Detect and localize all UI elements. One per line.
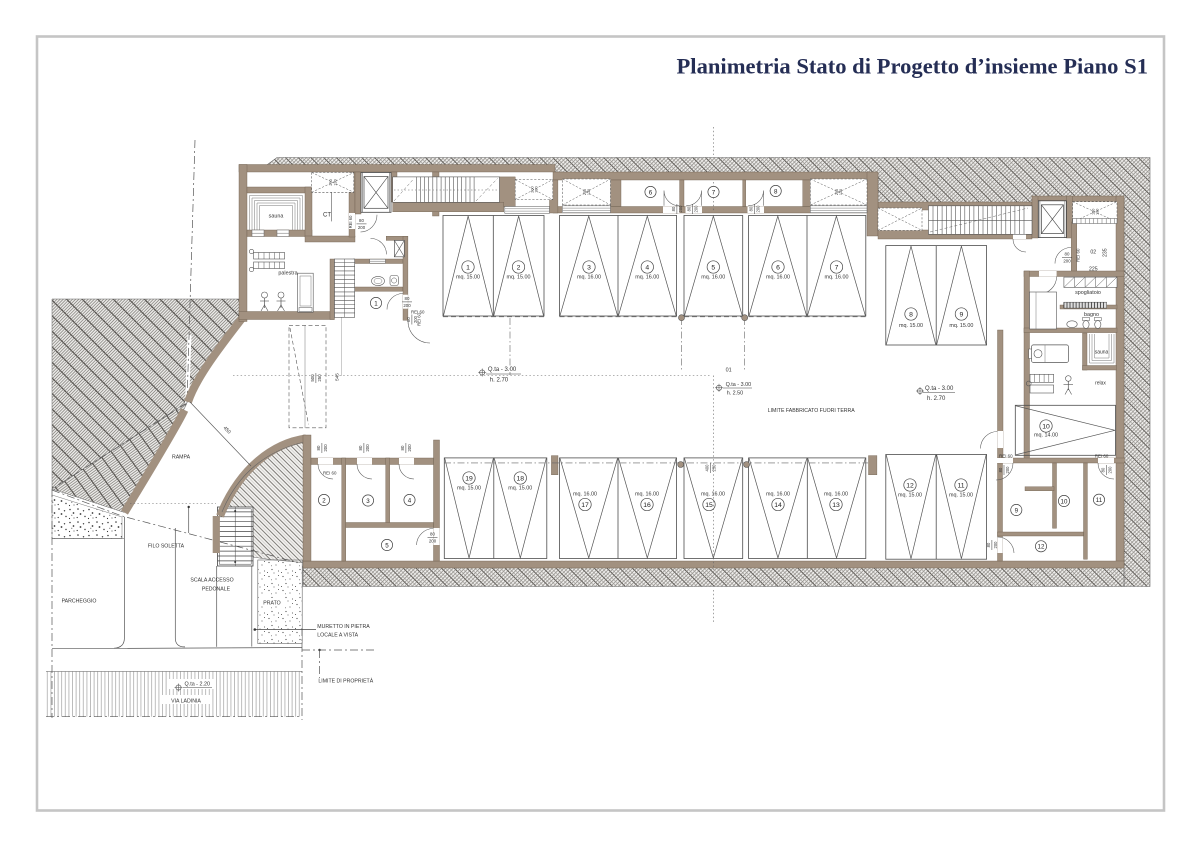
svg-text:13: 13: [832, 502, 840, 509]
svg-text:11: 11: [957, 482, 964, 489]
svg-text:200: 200: [403, 303, 411, 308]
svg-text:5: 5: [711, 264, 715, 271]
svg-text:500: 500: [310, 374, 315, 382]
svg-text:Planimetria Stato di Progetto: Planimetria Stato di Progetto d’insieme …: [676, 54, 1148, 79]
svg-text:80: 80: [1101, 467, 1106, 472]
svg-text:80: 80: [749, 206, 754, 211]
svg-text:17: 17: [581, 502, 589, 509]
svg-text:REI 60: REI 60: [999, 453, 1013, 458]
svg-text:10: 10: [1061, 498, 1068, 505]
svg-text:bagno: bagno: [1084, 312, 1099, 318]
svg-text:Q.ta - 3.00: Q.ta - 3.00: [726, 382, 751, 388]
svg-text:12: 12: [1038, 544, 1045, 551]
svg-text:225: 225: [1089, 267, 1098, 273]
svg-text:mq. 16.00: mq. 16.00: [824, 492, 848, 498]
svg-text:6: 6: [776, 264, 780, 271]
svg-text:2: 2: [517, 264, 521, 271]
svg-text:130: 130: [1095, 209, 1099, 215]
svg-text:mq. 15.00: mq. 15.00: [508, 486, 532, 492]
svg-text:mq. 16.00: mq. 16.00: [701, 275, 725, 281]
svg-text:h. 2.70: h. 2.70: [927, 396, 946, 402]
svg-text:01: 01: [726, 368, 732, 374]
svg-text:200: 200: [358, 225, 366, 230]
svg-text:7: 7: [712, 189, 716, 196]
svg-text:mq. 16.00: mq. 16.00: [825, 275, 849, 281]
svg-text:mq. 14.00: mq. 14.00: [1034, 433, 1058, 439]
svg-text:200: 200: [429, 538, 437, 543]
svg-text:250: 250: [711, 464, 716, 472]
svg-text:mq. 16.00: mq. 16.00: [573, 492, 597, 498]
svg-text:9: 9: [1015, 507, 1019, 514]
svg-text:10: 10: [1042, 423, 1050, 430]
svg-text:4: 4: [645, 264, 649, 271]
svg-text:REI 60: REI 60: [323, 471, 337, 476]
svg-text:18: 18: [517, 475, 525, 482]
svg-text:mq. 16.00: mq. 16.00: [577, 275, 601, 281]
svg-text:5: 5: [385, 542, 389, 549]
svg-text:mq. 15.00: mq. 15.00: [949, 493, 973, 499]
svg-text:200: 200: [755, 205, 760, 213]
svg-text:11: 11: [1096, 497, 1103, 504]
svg-text:h. 2.70: h. 2.70: [490, 378, 509, 384]
svg-text:RAMPA: RAMPA: [172, 455, 191, 461]
svg-text:Q.ta - 3.00: Q.ta - 3.00: [925, 386, 954, 392]
svg-text:VIA LADINIA: VIA LADINIA: [171, 699, 201, 705]
svg-text:200: 200: [1107, 466, 1112, 474]
svg-text:130: 130: [587, 189, 591, 195]
svg-text:mq. 16.00: mq. 16.00: [766, 492, 790, 498]
svg-text:CT: CT: [323, 213, 331, 219]
svg-text:PARCHEGGIO: PARCHEGGIO: [62, 599, 97, 605]
svg-text:130: 130: [839, 189, 843, 195]
svg-text:80: 80: [1065, 252, 1070, 257]
svg-text:16: 16: [643, 502, 651, 509]
svg-text:80: 80: [405, 296, 410, 301]
svg-text:8: 8: [909, 311, 913, 318]
svg-text:Q.ta - 2.20: Q.ta - 2.20: [185, 682, 210, 688]
svg-text:19: 19: [465, 475, 473, 482]
svg-text:8: 8: [774, 188, 778, 195]
svg-text:7: 7: [835, 264, 839, 271]
svg-text:PEDONALE: PEDONALE: [202, 587, 231, 593]
svg-text:80: 80: [316, 445, 321, 450]
svg-text:200: 200: [1005, 466, 1010, 474]
svg-text:200: 200: [1063, 258, 1071, 263]
svg-text:3: 3: [366, 498, 370, 505]
svg-text:80: 80: [406, 317, 411, 322]
svg-text:12: 12: [906, 482, 914, 489]
svg-text:1: 1: [466, 264, 470, 271]
svg-text:80: 80: [430, 532, 435, 537]
svg-text:02: 02: [1090, 250, 1096, 256]
svg-text:80: 80: [998, 467, 1003, 472]
svg-text:LIMITE FABBRICATO FUORI TERRA: LIMITE FABBRICATO FUORI TERRA: [768, 408, 856, 414]
svg-text:REI 60: REI 60: [1095, 453, 1109, 458]
svg-text:2: 2: [322, 497, 326, 504]
svg-text:mq. 15.00: mq. 15.00: [507, 275, 531, 281]
svg-text:mq. 15.00: mq. 15.00: [899, 323, 923, 329]
svg-text:4: 4: [408, 497, 412, 504]
svg-text:200: 200: [365, 444, 370, 452]
svg-text:9: 9: [960, 311, 964, 318]
svg-text:80: 80: [359, 218, 364, 223]
svg-text:mq. 16.00: mq. 16.00: [701, 492, 725, 498]
svg-text:spogliatoio: spogliatoio: [1075, 290, 1101, 296]
svg-text:14: 14: [774, 502, 782, 509]
svg-text:mq. 15.00: mq. 15.00: [456, 275, 480, 281]
svg-text:REI 60: REI 60: [417, 312, 422, 325]
svg-text:LOCALE A VISTA: LOCALE A VISTA: [317, 633, 358, 639]
svg-text:1: 1: [374, 300, 378, 307]
svg-text:200: 200: [323, 444, 328, 452]
svg-text:545: 545: [335, 373, 340, 381]
svg-text:sauna: sauna: [269, 214, 284, 220]
svg-text:235: 235: [1103, 248, 1109, 257]
svg-text:PRATO: PRATO: [263, 601, 280, 607]
svg-text:200: 200: [693, 205, 698, 213]
svg-text:h. 2.50: h. 2.50: [727, 391, 744, 397]
svg-text:MURETTO IN PIETRA: MURETTO IN PIETRA: [317, 624, 370, 630]
svg-text:mq. 15.00: mq. 15.00: [457, 486, 481, 492]
svg-text:130: 130: [535, 186, 539, 192]
svg-text:200: 200: [407, 444, 412, 452]
svg-text:SCALA ACCESSO: SCALA ACCESSO: [190, 578, 233, 584]
svg-text:80: 80: [400, 445, 405, 450]
svg-text:80: 80: [687, 206, 692, 211]
svg-text:mq. 15.00: mq. 15.00: [898, 493, 922, 499]
svg-text:15: 15: [705, 502, 713, 509]
svg-text:REI 60: REI 60: [348, 215, 353, 228]
svg-text:200: 200: [678, 205, 683, 213]
svg-text:200: 200: [993, 541, 998, 549]
svg-text:400: 400: [705, 464, 710, 472]
svg-text:130: 130: [333, 179, 337, 185]
svg-text:Q.ta - 3.00: Q.ta - 3.00: [488, 367, 517, 373]
svg-text:80: 80: [358, 445, 363, 450]
svg-text:3: 3: [587, 264, 591, 271]
svg-text:80: 80: [986, 542, 991, 547]
svg-text:250: 250: [317, 374, 322, 382]
svg-text:REI 60: REI 60: [1076, 248, 1081, 262]
svg-text:6: 6: [649, 189, 653, 196]
svg-text:sauna: sauna: [1095, 350, 1109, 356]
svg-text:80: 80: [671, 206, 676, 211]
svg-text:LIMITE DI PROPRIETÀ: LIMITE DI PROPRIETÀ: [318, 678, 373, 685]
svg-text:relax: relax: [1095, 381, 1106, 387]
svg-text:palestra: palestra: [278, 271, 297, 277]
svg-text:mq. 16.00: mq. 16.00: [635, 492, 659, 498]
svg-text:mq. 16.00: mq. 16.00: [766, 275, 790, 281]
svg-text:mq. 15.00: mq. 15.00: [949, 323, 973, 329]
svg-text:mq. 16.00: mq. 16.00: [635, 275, 659, 281]
svg-text:FILO SOLETTA: FILO SOLETTA: [148, 544, 185, 550]
